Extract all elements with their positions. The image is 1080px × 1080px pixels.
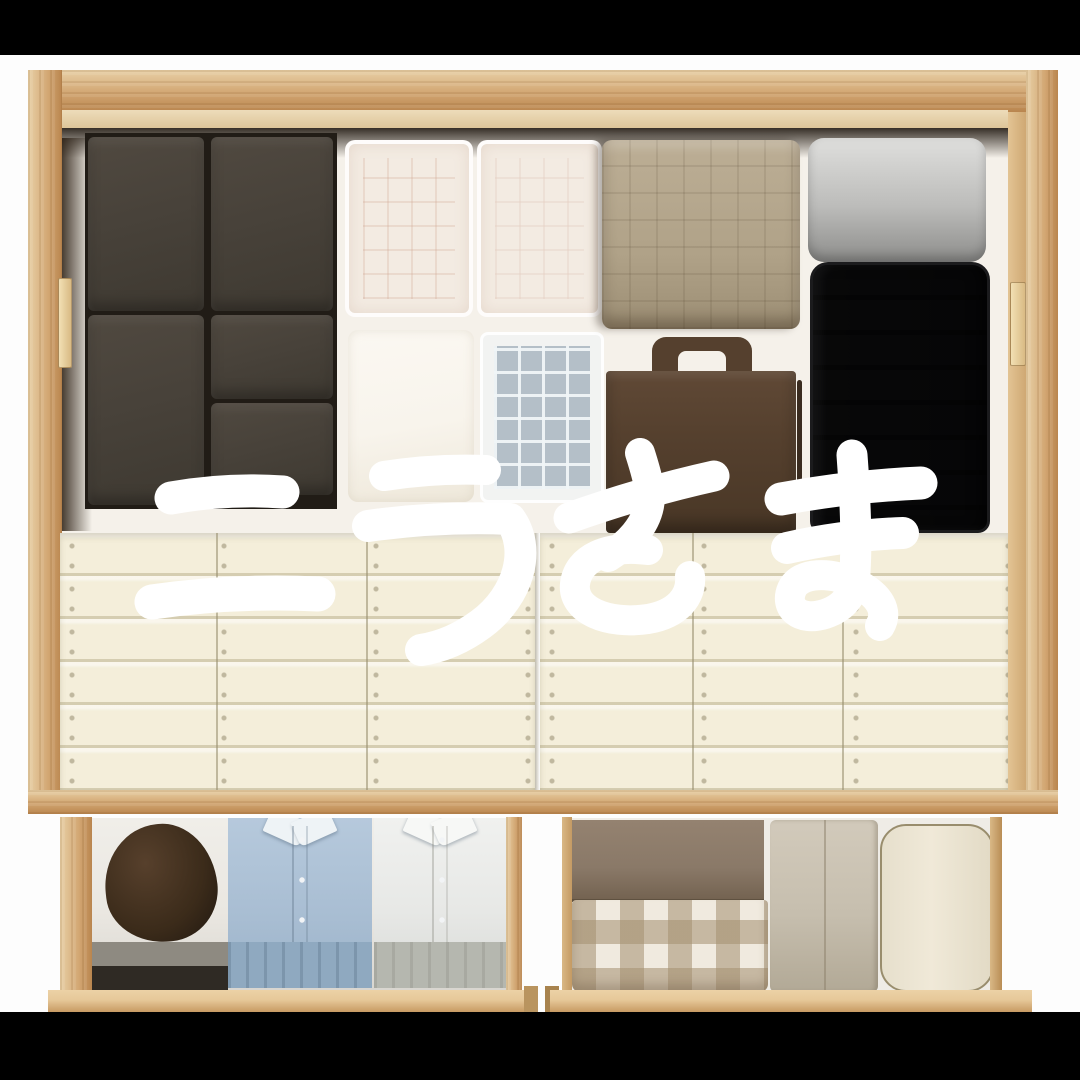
overlay-char-ma xyxy=(781,455,921,626)
overlay-char-ni xyxy=(152,491,318,602)
overlay-char-ra xyxy=(368,470,520,650)
listing-photo: ニラさま xyxy=(0,0,1080,1080)
name-overlay-text: ニラさま xyxy=(0,0,1080,1080)
overlay-char-sa xyxy=(569,453,714,620)
